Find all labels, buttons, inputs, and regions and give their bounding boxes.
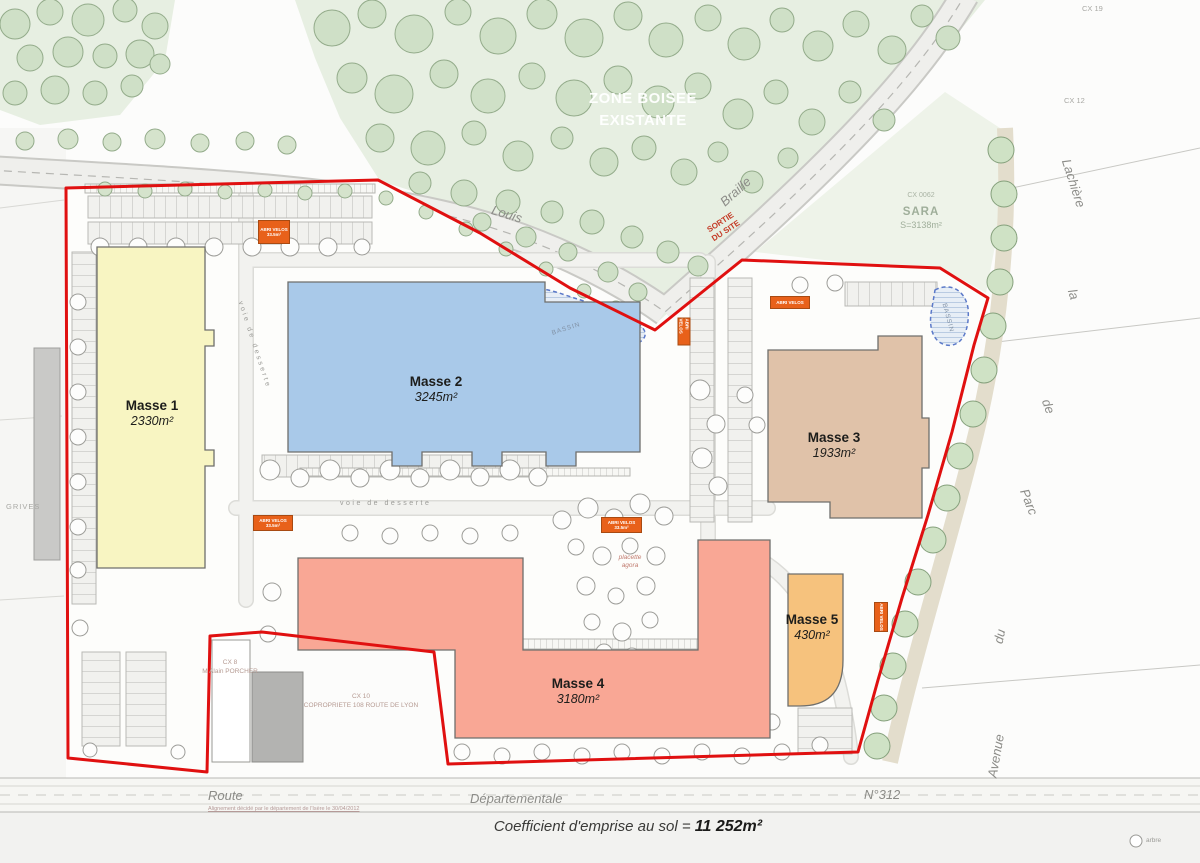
abri-velos-tag-2: ABRI VELOS33.5m²: [253, 515, 293, 531]
abri-velos-tag-3: ABRI VELOS33.5m²: [601, 517, 642, 533]
abri-velos-tag-6: ABRI VELOS: [874, 602, 888, 632]
abri-velos-tag-5: ABRI VELOS: [678, 318, 691, 346]
site-plan: ZONE BOISEE EXISTANTE Louis Braille SORT…: [0, 0, 1200, 863]
masse-3-building: [768, 336, 929, 518]
road-departementale: [0, 778, 1200, 812]
masse-2-building: [288, 282, 640, 466]
legend-tree-icon: [1130, 835, 1142, 847]
masse-1-building: [97, 247, 214, 568]
masse-5-building: [788, 574, 843, 706]
abri-velos-tag-1: ABRI VELOS33.5m²: [258, 220, 290, 244]
bottom-area: [0, 812, 1200, 863]
plan-graphics: [0, 0, 1200, 863]
abri-velos-tag-4: ABRI VELOS: [770, 296, 810, 309]
